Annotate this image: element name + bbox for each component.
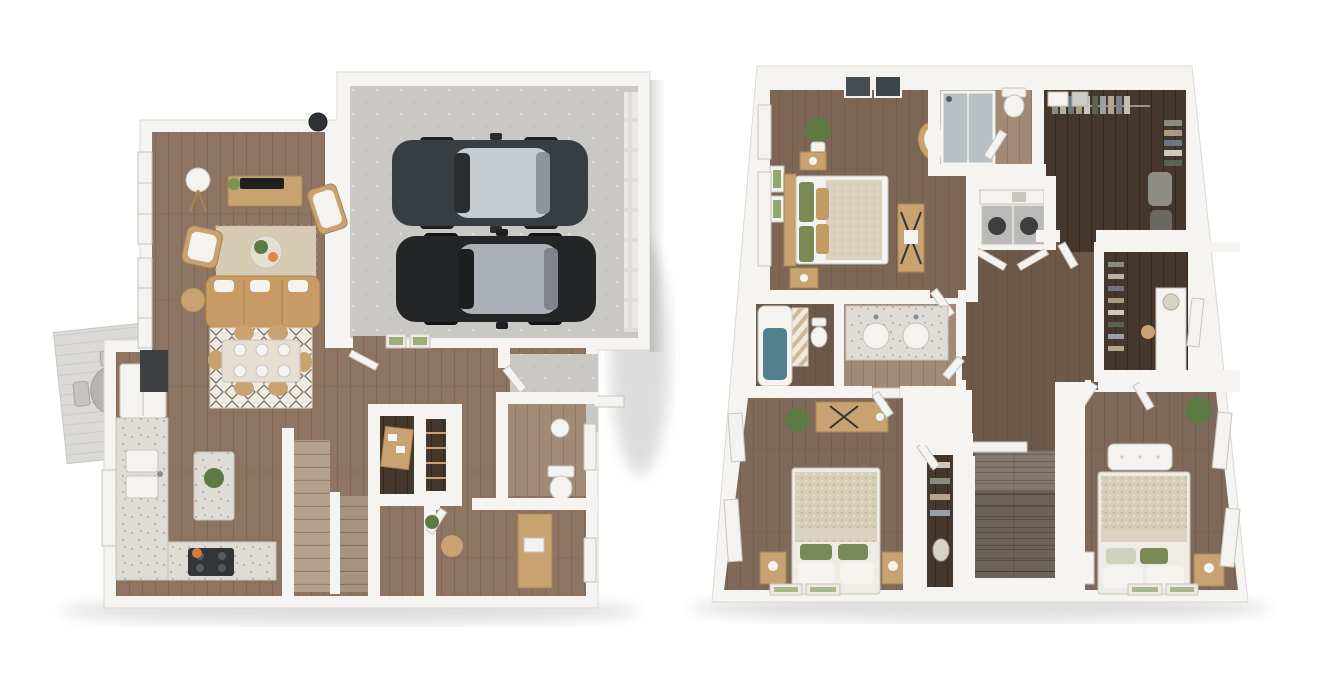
headboard — [784, 174, 796, 266]
pillow — [816, 224, 829, 254]
wall-oven — [140, 350, 168, 392]
wall-art — [875, 76, 901, 97]
first-floor-plan — [53, 72, 670, 624]
den-pantry-bottom-wall — [368, 494, 462, 506]
office-top-wall — [472, 498, 598, 510]
master-bed — [784, 174, 888, 266]
stair-wall — [282, 428, 294, 600]
sofa — [206, 276, 320, 328]
armchair-left — [181, 225, 224, 270]
floorplan-rendering — [0, 0, 1336, 686]
garage-shadow — [650, 80, 665, 352]
toilet — [1004, 95, 1024, 117]
lamp — [768, 561, 778, 571]
den-pantry-divider — [414, 410, 422, 500]
second-floor-plan — [690, 66, 1270, 621]
double-vanity — [846, 306, 948, 360]
sink — [903, 323, 929, 349]
stair-railing — [969, 442, 1027, 452]
dining-area — [208, 325, 312, 408]
garage-door-opening — [353, 336, 387, 350]
throw-pillow — [214, 280, 234, 292]
office-window — [584, 538, 596, 582]
pantry-right-wall — [450, 404, 462, 504]
closet-shelving — [927, 455, 953, 587]
kitchen-window — [102, 470, 116, 546]
powder-room — [496, 392, 598, 508]
pillow — [799, 182, 814, 222]
dryer-door — [1020, 217, 1038, 235]
lamp — [888, 561, 898, 571]
master-window — [758, 172, 771, 266]
pantry — [422, 416, 450, 494]
side-table — [181, 288, 205, 312]
powder-top-wall — [496, 392, 598, 404]
tv — [240, 178, 284, 189]
dresser-vase — [876, 413, 884, 421]
potted-plant — [805, 117, 831, 143]
tub-water — [763, 328, 787, 380]
shower-curtain — [792, 308, 808, 366]
faucet — [157, 471, 163, 477]
kitchen-counter-left — [116, 418, 168, 580]
mirror — [1163, 294, 1179, 310]
floorplan-canvas — [0, 0, 1336, 686]
pillow — [798, 562, 834, 584]
dresser — [816, 402, 888, 432]
floral-pillow — [1106, 548, 1136, 564]
storage-box — [1072, 92, 1088, 106]
dining-chair — [234, 325, 254, 341]
table-plant — [254, 240, 268, 254]
computer — [524, 538, 544, 552]
blanket-fold — [795, 528, 877, 540]
mirror — [933, 539, 949, 561]
table-book — [268, 252, 278, 262]
coffee-table — [250, 236, 282, 268]
console-plant — [228, 178, 240, 190]
basket — [1012, 192, 1026, 202]
stool — [1141, 325, 1155, 339]
under-stair-den — [380, 416, 414, 494]
throw-pillow — [250, 280, 270, 292]
faucet — [914, 315, 919, 320]
office-plant — [425, 515, 439, 529]
powder-left-wall — [496, 398, 508, 508]
blanket-fold — [1101, 530, 1187, 542]
shower-head — [946, 96, 952, 102]
bedroom2-window — [728, 413, 745, 462]
pillow — [838, 544, 868, 560]
master-window — [758, 105, 771, 159]
basket — [990, 192, 1004, 202]
car-rear-window — [458, 249, 474, 309]
sink — [863, 323, 889, 349]
wall-art — [845, 76, 871, 97]
vanity-desk — [898, 204, 924, 272]
washer-door — [988, 217, 1006, 235]
throw-pillow — [288, 280, 308, 292]
car-1 — [392, 133, 588, 233]
staircase-down — [969, 442, 1055, 578]
lamp — [800, 274, 808, 282]
desk-item — [904, 230, 918, 244]
porch-railing — [594, 396, 624, 407]
pillow — [799, 226, 814, 262]
storage-box — [1048, 92, 1068, 106]
stair-spine-wall — [330, 492, 340, 594]
bed — [792, 468, 880, 594]
lamp — [1204, 563, 1214, 573]
garage-door — [624, 92, 638, 332]
toilet — [548, 466, 574, 500]
island-plant — [204, 468, 224, 488]
pot-on-stove — [192, 548, 202, 558]
potted-plant — [785, 408, 809, 432]
faucet — [874, 315, 879, 320]
dining-chair — [268, 325, 288, 341]
pedestal-sink — [551, 419, 569, 437]
deck-chair — [73, 381, 90, 406]
car-2 — [396, 229, 596, 329]
car-windshield — [544, 248, 558, 310]
bed — [1098, 472, 1190, 594]
pillow — [800, 544, 832, 560]
pillow — [1140, 548, 1168, 564]
toilet — [811, 327, 827, 347]
car-windshield — [536, 152, 550, 214]
suitcase — [1148, 172, 1172, 206]
pillow — [840, 562, 874, 584]
powder-window — [584, 424, 596, 470]
toilet-tank — [812, 318, 826, 326]
car-rear-window — [454, 153, 470, 213]
kitchen-island — [194, 452, 234, 520]
porch-wall — [498, 348, 510, 368]
office-chair — [441, 535, 463, 557]
pantry-shelving — [426, 419, 446, 491]
potted-plant — [1185, 397, 1211, 423]
lamp — [809, 157, 817, 165]
water-heater — [309, 113, 327, 131]
pillow — [816, 188, 829, 220]
powder-floor — [508, 404, 586, 496]
cooktop — [188, 548, 234, 576]
